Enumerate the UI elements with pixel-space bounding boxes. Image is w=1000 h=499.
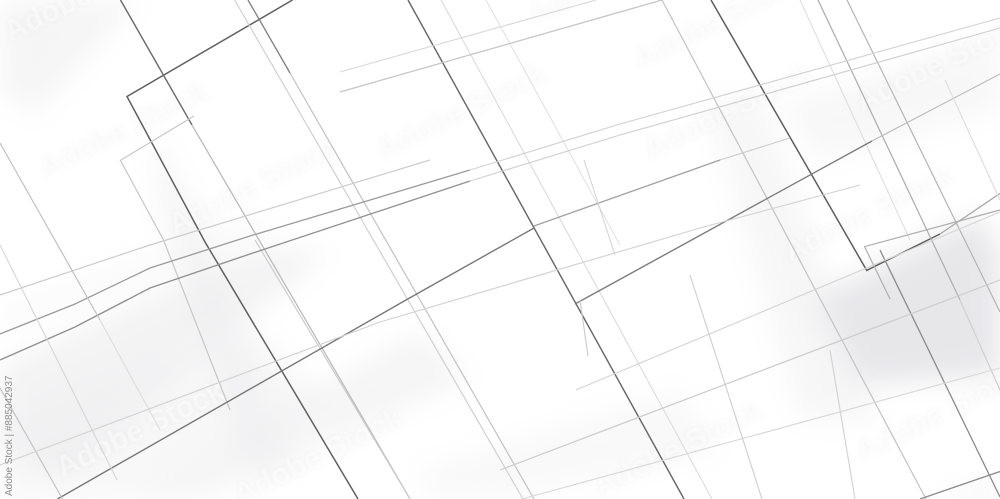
svg-text:Adobe Stock | #885042937: Adobe Stock | #885042937 xyxy=(4,375,15,496)
